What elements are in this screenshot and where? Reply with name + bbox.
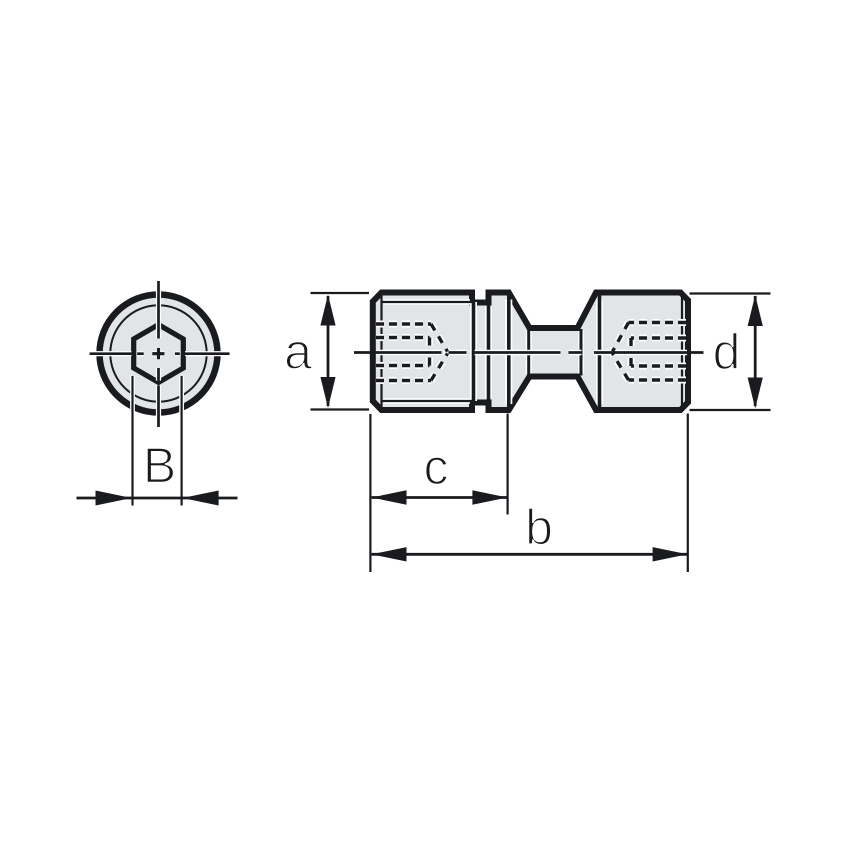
svg-text:d: d bbox=[713, 324, 741, 380]
svg-text:b: b bbox=[525, 500, 553, 556]
svg-text:c: c bbox=[424, 439, 449, 495]
svg-text:a: a bbox=[284, 324, 312, 380]
svg-text:B: B bbox=[143, 438, 176, 494]
